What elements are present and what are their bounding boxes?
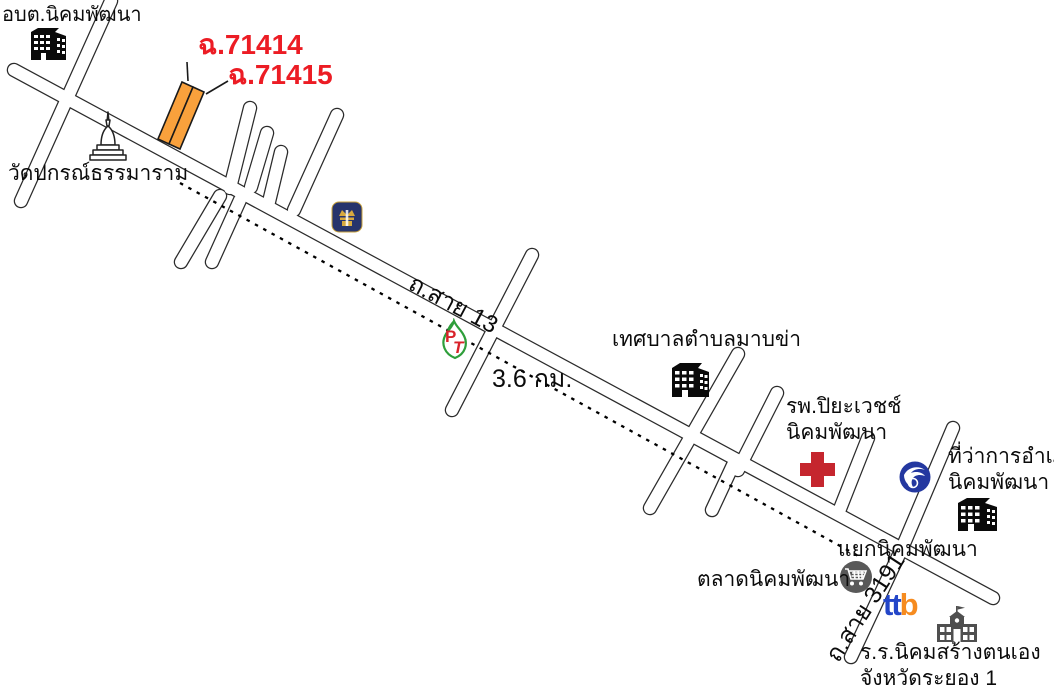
label-school: ร.ร.นิคมสร้างตนเอง จังหวัดระยอง 1	[860, 640, 1041, 692]
label-school-line2: จังหวัดระยอง 1	[860, 666, 1041, 692]
hospital-cross-icon	[799, 451, 836, 488]
map-canvas: P T	[0, 0, 1054, 692]
label-district-office-line1: ที่ว่าการอำเภอ	[948, 444, 1054, 470]
label-district-office-line2: นิคมพัฒนา	[948, 470, 1054, 496]
leader-line-71415	[206, 81, 228, 94]
label-parcel-71415: ฉ.71415	[228, 60, 333, 90]
label-market: ตลาดนิคมพัฒนา	[697, 567, 850, 593]
label-school-line1: ร.ร.นิคมสร้างตนเอง	[860, 640, 1041, 666]
temple-stupa-icon	[86, 110, 130, 162]
label-district-office: ที่ว่าการอำเภอ นิคมพัฒนา	[948, 444, 1054, 496]
label-subdistrict-office: อบต.นิคมพัฒนา	[2, 2, 142, 28]
label-temple: วัดปกรณ์ธรรมาราม	[8, 161, 188, 187]
municipality-building-icon	[666, 358, 712, 400]
label-municipality: เทศบาลตำบลมาบข่า	[612, 327, 801, 353]
bangkok-bank-icon	[331, 201, 363, 233]
svg-text:T: T	[453, 338, 465, 357]
office-building-icon	[26, 24, 70, 62]
krungthai-bank-icon	[898, 459, 932, 495]
land-parcels	[158, 82, 204, 149]
label-parcel-71414: ฉ.71414	[198, 30, 303, 60]
label-hospital-line1: รพ.ปิยะเวชช์	[786, 394, 901, 420]
label-hospital: รพ.ปิยะเวชช์ นิคมพัฒนา	[786, 394, 901, 446]
school-icon	[935, 604, 979, 644]
district-office-building-icon	[952, 492, 1000, 534]
label-distance: 3.6 กม.	[492, 366, 572, 392]
label-hospital-line2: นิคมพัฒนา	[786, 420, 901, 446]
ttb-logo-b: b	[900, 587, 919, 622]
leader-line-71414	[187, 62, 188, 81]
